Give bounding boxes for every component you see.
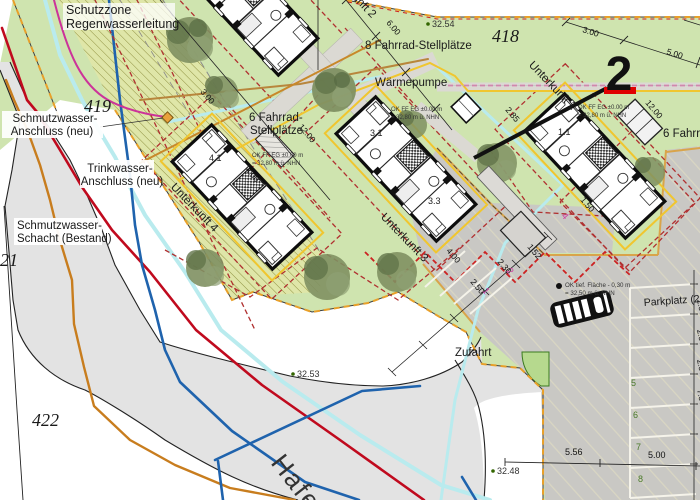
svg-text:= 32,50 m ü. NHN: = 32,50 m ü. NHN	[565, 290, 615, 297]
svg-text:Trinkwasser-: Trinkwasser-	[87, 163, 153, 175]
svg-text:OK FF EG ±0.00 m: OK FF EG ±0.00 m	[391, 107, 442, 113]
svg-text:6 Fahrrad-: 6 Fahrrad-	[249, 112, 303, 124]
svg-text:Stellplätze: Stellplätze	[250, 125, 303, 137]
svg-text:Schutzzone: Schutzzone	[66, 3, 131, 17]
svg-text:32.54: 32.54	[432, 19, 455, 29]
svg-text:3.1: 3.1	[370, 128, 383, 138]
svg-text:OK FF EG ±0.00 m: OK FF EG ±0.00 m	[252, 153, 303, 159]
svg-text:5.56: 5.56	[565, 447, 583, 457]
svg-text:8: 8	[638, 474, 643, 484]
svg-text:3.3: 3.3	[428, 196, 441, 206]
svg-text:Schmutzwasser-: Schmutzwasser-	[17, 220, 102, 232]
svg-text:OK tief. Fläche - 0,30 m: OK tief. Fläche - 0,30 m	[565, 282, 630, 289]
svg-text:418: 418	[492, 26, 519, 46]
svg-text:6: 6	[633, 410, 638, 420]
svg-text:421: 421	[0, 250, 18, 270]
svg-text:7: 7	[636, 442, 641, 452]
svg-text:OK FF EG ±0.00 m: OK FF EG ±0.00 m	[578, 105, 629, 111]
svg-text:1.1: 1.1	[558, 127, 571, 137]
svg-text:Schmutzwasser-: Schmutzwasser-	[13, 113, 98, 125]
svg-text:5: 5	[631, 378, 636, 388]
svg-text:Zufahrt: Zufahrt	[455, 347, 492, 359]
svg-text:= 32,80 m ü. NHN: = 32,80 m ü. NHN	[391, 115, 439, 121]
svg-text:Anschluss (neu): Anschluss (neu)	[11, 126, 94, 138]
svg-text:8 Fahrrad-Stellplätze: 8 Fahrrad-Stellplätze	[365, 40, 472, 52]
svg-text:Schacht (Bestand): Schacht (Bestand)	[17, 233, 112, 245]
svg-text:5.00: 5.00	[648, 450, 666, 460]
svg-text:Wärmepumpe: Wärmepumpe	[375, 77, 447, 89]
svg-text:= 32,80 m ü. NHN: = 32,80 m ü. NHN	[252, 161, 300, 167]
svg-text:Anschluss (neu): Anschluss (neu)	[81, 176, 164, 188]
svg-text:32.48: 32.48	[497, 466, 520, 476]
svg-text:2: 2	[606, 48, 633, 101]
svg-text:= 32,80 m ü. NHN: = 32,80 m ü. NHN	[578, 113, 626, 119]
svg-text:422: 422	[32, 410, 59, 430]
svg-text:6 Fahrrad-: 6 Fahrrad-	[663, 128, 700, 140]
svg-text:Regenwasserleitung: Regenwasserleitung	[66, 17, 179, 31]
svg-text:4.1: 4.1	[209, 153, 222, 163]
svg-text:32.53: 32.53	[297, 369, 320, 379]
